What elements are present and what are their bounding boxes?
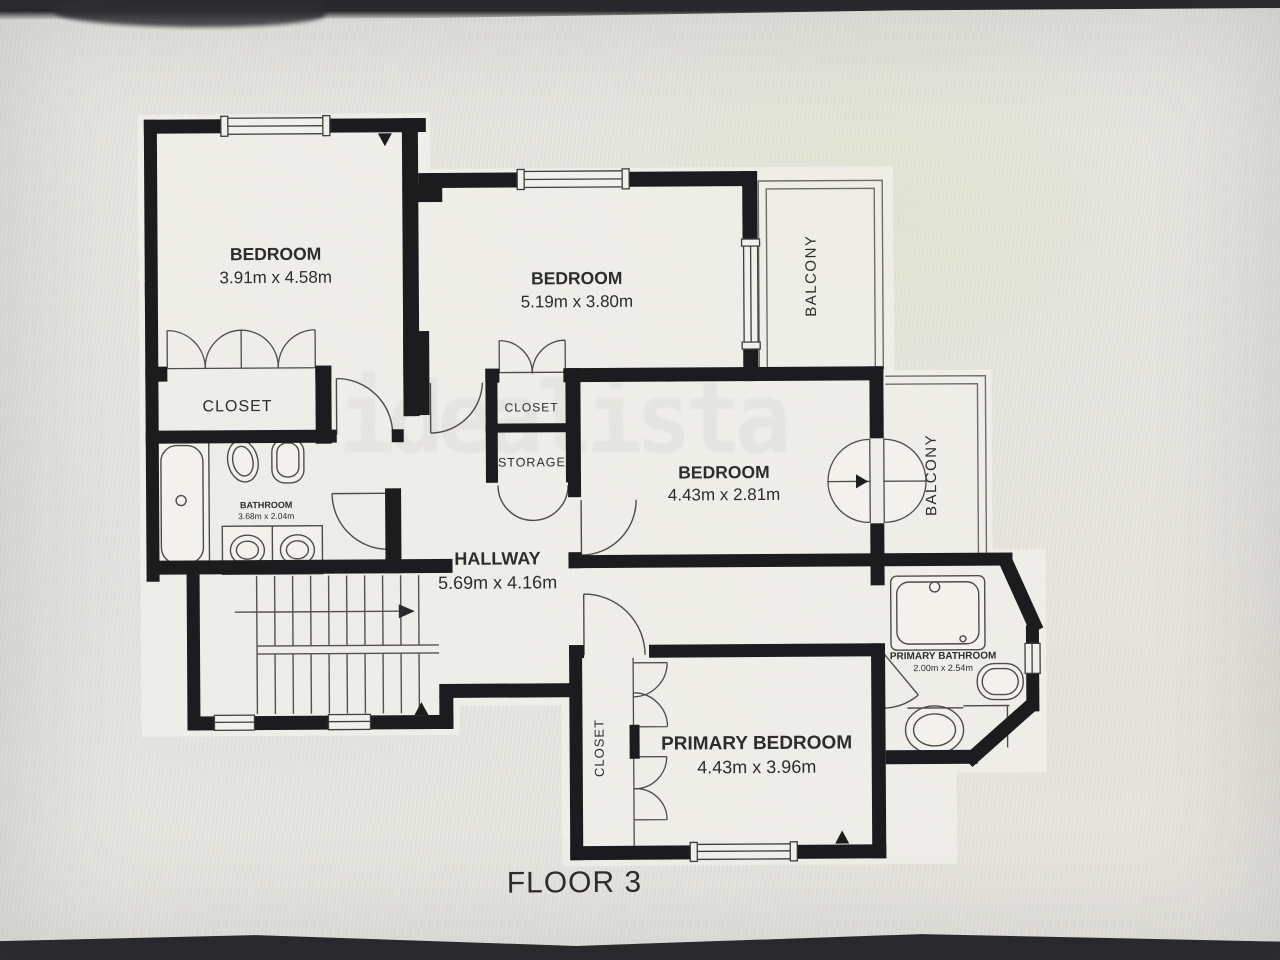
window-balcony-slider <box>742 239 761 349</box>
label-bedroom1-dims: 3.91m x 4.58m <box>219 268 332 288</box>
window-bedroom1 <box>221 116 330 137</box>
window-primary-bedroom <box>690 842 797 862</box>
label-bedroom3-dims: 4.43m x 2.81m <box>668 485 781 505</box>
window-bedroom2 <box>517 169 629 190</box>
window-stairs-left <box>214 715 254 730</box>
label-bedroom2-name: BEDROOM <box>531 268 623 289</box>
window-stairs-right <box>328 714 370 729</box>
label-closet-primary: CLOSET <box>591 719 606 777</box>
label-bedroom2-dims: 5.19m x 3.80m <box>521 292 634 312</box>
label-closet-left: CLOSET <box>202 398 272 415</box>
label-bathroom-name: BATHROOM <box>240 500 292 510</box>
shower-tub <box>891 576 985 651</box>
label-closet-center: CLOSET <box>505 400 559 414</box>
window-primary-bathroom <box>1025 643 1040 673</box>
label-hallway-dims: 5.69m x 4.16m <box>438 572 557 593</box>
floor-label: FLOOR 3 <box>507 866 643 900</box>
floorplan: BEDROOM 3.91m x 4.58m BEDROOM 5.19m x 3.… <box>0 0 1280 960</box>
label-bedroom1-name: BEDROOM <box>230 244 322 265</box>
label-primary-bathroom-name: PRIMARY BATHROOM <box>890 651 997 663</box>
label-hallway-name: HALLWAY <box>454 548 540 569</box>
label-storage: STORAGE <box>498 455 566 469</box>
label-bedroom3-name: BEDROOM <box>678 462 770 483</box>
screen-photo: idealista <box>0 0 1280 960</box>
label-balcony-right: BALCONY <box>923 434 941 516</box>
label-primary-bedroom-dims: 4.43m x 3.96m <box>697 757 816 778</box>
label-balcony-top: BALCONY <box>803 235 821 317</box>
label-bathroom-dims: 3.68m x 2.04m <box>238 511 294 521</box>
label-primary-bedroom-name: PRIMARY BEDROOM <box>661 732 852 754</box>
label-primary-bathroom-dims: 2.00m x 2.54m <box>913 663 973 673</box>
